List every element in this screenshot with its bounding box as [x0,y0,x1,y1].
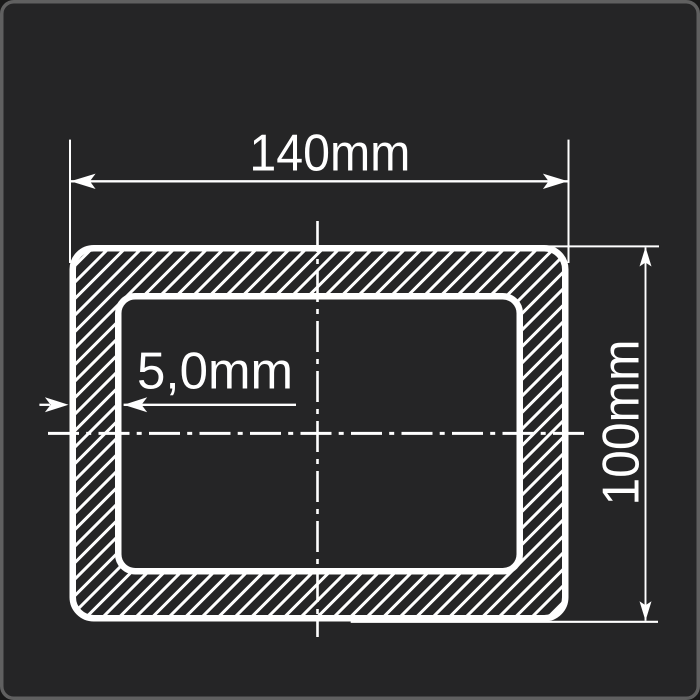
svg-text:5,0mm: 5,0mm [137,343,293,401]
svg-text:100mm: 100mm [593,340,651,506]
svg-text:140mm: 140mm [249,124,410,182]
